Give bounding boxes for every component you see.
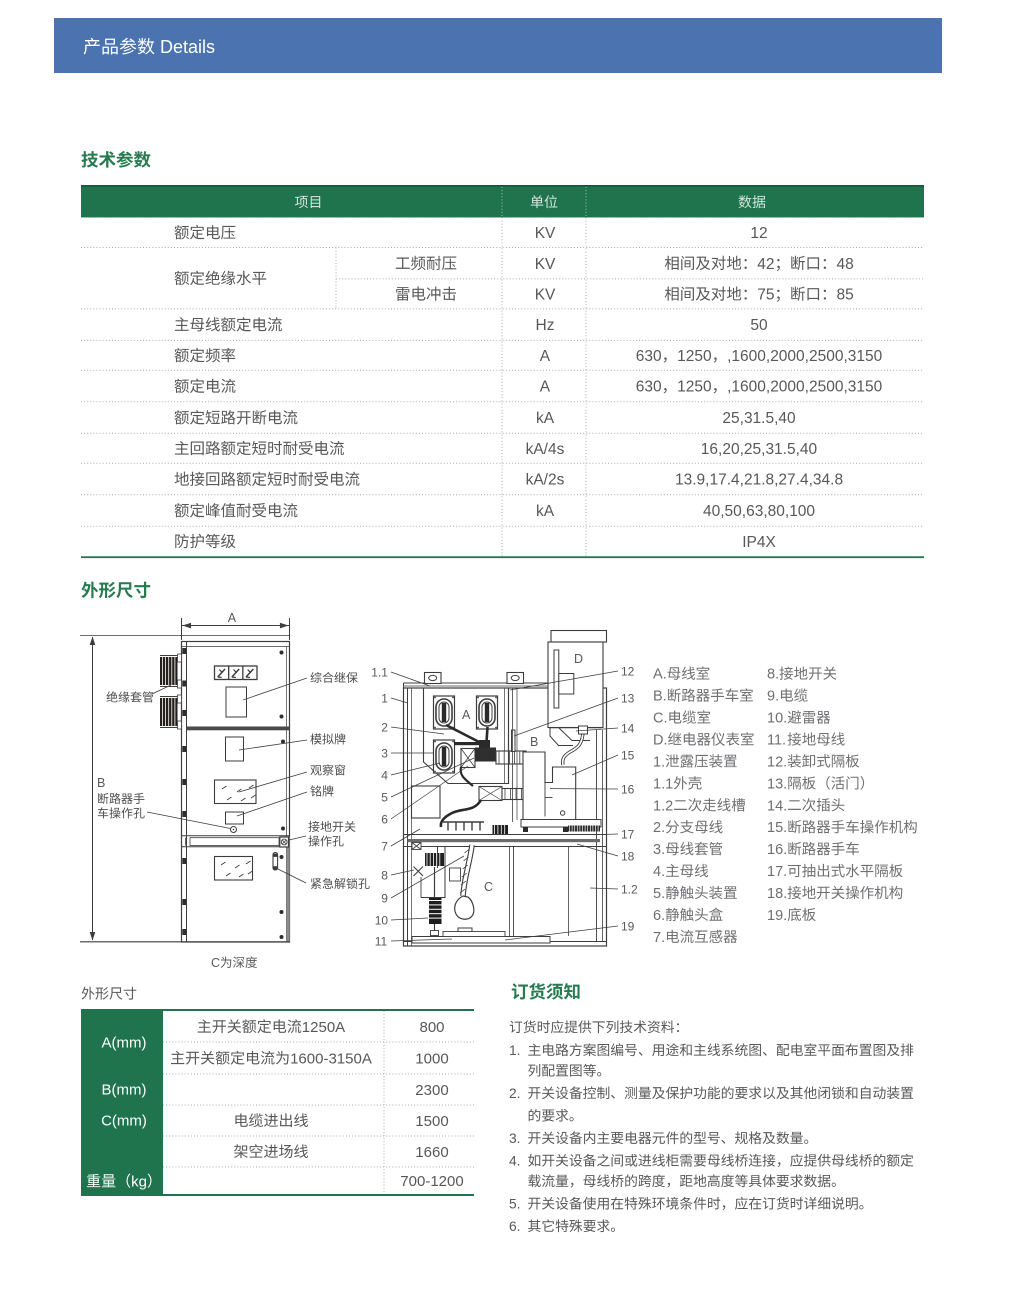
svg-text:1.: 1. — [653, 754, 665, 770]
svg-text:800: 800 — [420, 1019, 445, 1036]
svg-text:13: 13 — [621, 691, 635, 705]
svg-text:C(mm): C(mm) — [101, 1112, 147, 1129]
svg-text:4: 4 — [381, 768, 388, 782]
svg-text:12.: 12. — [767, 754, 787, 770]
svg-text:1660: 1660 — [415, 1144, 448, 1161]
svg-text:B: B — [97, 776, 105, 790]
svg-text:D: D — [574, 652, 583, 666]
svg-text:,1600,2000,2500,3150: ,1600,2000,2500,3150 — [727, 379, 883, 396]
svg-text:15.: 15. — [767, 820, 787, 836]
svg-text:12: 12 — [750, 225, 767, 242]
svg-text:3: 3 — [381, 746, 388, 760]
svg-text:2.: 2. — [509, 1086, 521, 1101]
svg-text:6.: 6. — [653, 908, 665, 924]
svg-text:6.: 6. — [509, 1219, 521, 1234]
svg-text:16,20,25,31.5,40: 16,20,25,31.5,40 — [701, 441, 818, 458]
svg-text:1250: 1250 — [677, 379, 712, 396]
svg-text:2.: 2. — [653, 820, 665, 836]
svg-text:B(mm): B(mm) — [102, 1081, 147, 1098]
svg-text:KV: KV — [535, 225, 556, 242]
svg-text:10.: 10. — [767, 711, 787, 727]
svg-text:C: C — [211, 956, 220, 970]
svg-text:2: 2 — [381, 720, 388, 734]
svg-text:5.: 5. — [653, 886, 665, 902]
svg-text:1.2: 1.2 — [653, 798, 673, 814]
svg-text:D.: D. — [653, 733, 668, 749]
svg-text:75: 75 — [757, 287, 774, 304]
svg-text:25,31.5,40: 25,31.5,40 — [722, 410, 796, 427]
svg-text:18.: 18. — [767, 886, 787, 902]
svg-text:700-1200: 700-1200 — [400, 1173, 463, 1190]
svg-text:6: 6 — [381, 812, 388, 826]
svg-text:KV: KV — [535, 256, 556, 273]
svg-text:11.: 11. — [767, 733, 786, 749]
svg-text:16: 16 — [621, 782, 635, 796]
svg-text:A(mm): A(mm) — [102, 1034, 147, 1051]
svg-text:10: 10 — [375, 913, 389, 927]
svg-text:1.1: 1.1 — [371, 665, 388, 679]
svg-text:C.: C. — [653, 711, 668, 727]
svg-text:13.9,17.4,21.8,27.4,34.8: 13.9,17.4,21.8,27.4,34.8 — [675, 472, 843, 489]
svg-text:,1600,2000,2500,3150: ,1600,2000,2500,3150 — [727, 348, 883, 365]
svg-text:19.: 19. — [767, 908, 787, 924]
svg-text:B: B — [530, 735, 538, 749]
svg-text:1500: 1500 — [415, 1113, 448, 1130]
svg-text:14: 14 — [621, 721, 635, 735]
svg-text:C: C — [484, 880, 493, 894]
svg-text:50: 50 — [750, 317, 768, 334]
svg-text:9.: 9. — [767, 689, 779, 705]
svg-text:1.1: 1.1 — [653, 776, 673, 792]
svg-text:A.: A. — [653, 667, 667, 683]
svg-text:42: 42 — [757, 256, 774, 273]
svg-text:2300: 2300 — [415, 1082, 448, 1099]
svg-text:7: 7 — [381, 839, 388, 853]
svg-text:kg: kg — [131, 1173, 147, 1190]
svg-text:15: 15 — [621, 748, 635, 762]
svg-text:Hz: Hz — [536, 317, 555, 334]
svg-text:8: 8 — [381, 868, 388, 882]
svg-text:kA/4s: kA/4s — [526, 441, 565, 458]
svg-text:9: 9 — [381, 891, 388, 905]
svg-text:kA: kA — [536, 503, 555, 520]
svg-text:1250A: 1250A — [302, 1019, 345, 1036]
svg-text:3.: 3. — [653, 842, 665, 858]
svg-text:kA/2s: kA/2s — [526, 472, 565, 489]
svg-text:B.: B. — [653, 689, 667, 705]
svg-text:3.: 3. — [509, 1131, 521, 1146]
svg-text:IP4X: IP4X — [742, 534, 776, 551]
svg-text:A: A — [540, 348, 551, 365]
svg-text:17.: 17. — [767, 864, 787, 880]
svg-text:4.: 4. — [653, 864, 665, 880]
svg-text:KV: KV — [535, 287, 556, 304]
svg-text:19: 19 — [621, 919, 635, 933]
svg-text:17: 17 — [621, 827, 635, 841]
svg-text:A: A — [462, 708, 471, 722]
svg-text:1250: 1250 — [677, 348, 712, 365]
svg-text:40,50,63,80,100: 40,50,63,80,100 — [703, 503, 815, 520]
svg-text:18: 18 — [621, 849, 635, 863]
svg-text:kA: kA — [536, 410, 555, 427]
svg-text:7.: 7. — [653, 930, 665, 946]
svg-text:8.: 8. — [767, 667, 779, 683]
svg-text:48: 48 — [837, 256, 854, 273]
svg-text:12: 12 — [621, 664, 635, 678]
svg-text:14.: 14. — [767, 798, 787, 814]
svg-text:1: 1 — [381, 691, 388, 705]
svg-text:630: 630 — [636, 348, 662, 365]
svg-text:5.: 5. — [509, 1197, 521, 1212]
svg-text:A: A — [228, 611, 237, 625]
svg-text:11: 11 — [375, 934, 388, 948]
svg-text:85: 85 — [837, 287, 854, 304]
svg-text:16.: 16. — [767, 842, 787, 858]
svg-text:5: 5 — [381, 790, 388, 804]
svg-text:1600-3150A: 1600-3150A — [290, 1050, 372, 1067]
svg-text:1.: 1. — [509, 1043, 521, 1058]
svg-text:13.: 13. — [767, 776, 787, 792]
svg-text:1000: 1000 — [415, 1050, 448, 1067]
svg-text:A: A — [540, 379, 551, 396]
svg-text:Details: Details — [160, 37, 215, 57]
svg-text:630: 630 — [636, 379, 662, 396]
svg-text:1.2: 1.2 — [621, 882, 638, 896]
svg-text:4.: 4. — [509, 1154, 521, 1169]
